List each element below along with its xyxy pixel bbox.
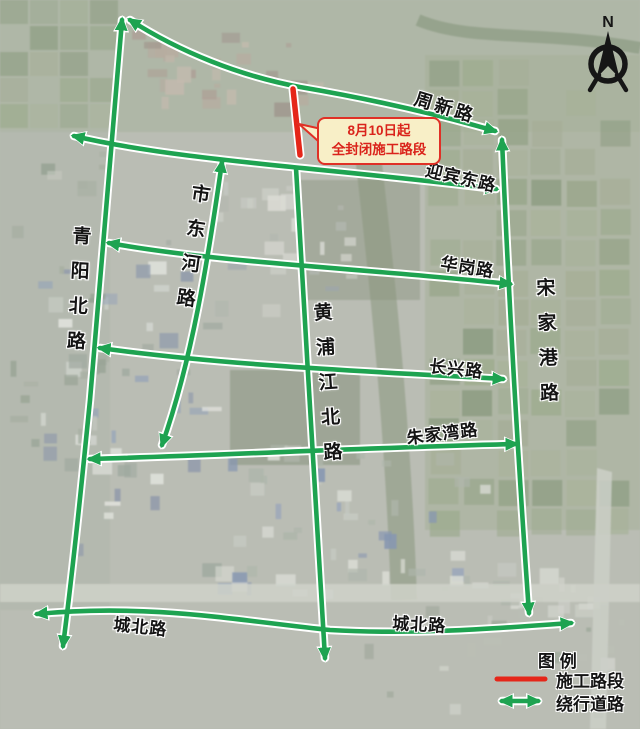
legend-item-detour: 绕行道路 xyxy=(556,690,624,715)
compass-n-label: N xyxy=(602,14,614,31)
callout-line1: 8月10日起 xyxy=(323,122,435,141)
traffic-detour-map: N 周新路 迎宾东路 华岗路 长兴路 朱家湾路 城北路 城北路 青阳北路 市东河… xyxy=(0,0,640,729)
road-label-songjia: 宋家港路 xyxy=(531,277,560,418)
legend-item-construction: 施工路段 xyxy=(556,667,624,692)
callout-line2: 全封闭施工路段 xyxy=(323,141,435,160)
construction-notice-callout: 8月10日起 全封闭施工路段 xyxy=(317,117,441,165)
road-label-chengbei-east: 城北路 xyxy=(392,609,447,637)
